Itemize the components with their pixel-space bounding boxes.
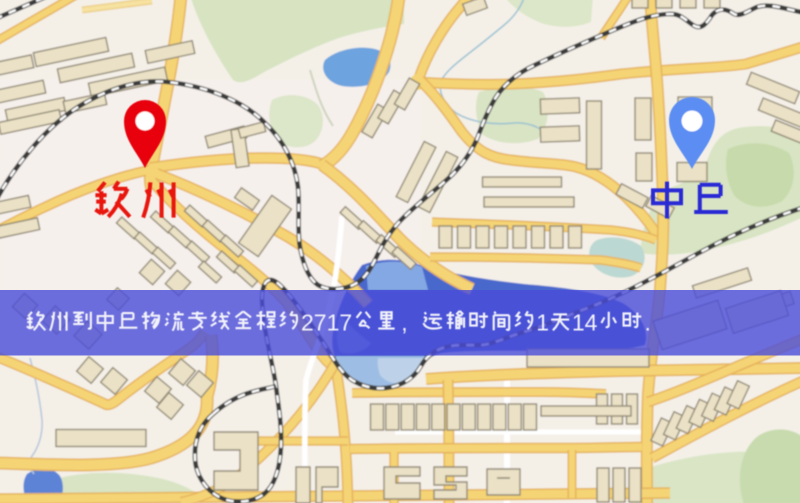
- svg-text:.: .: [645, 310, 651, 336]
- svg-text:1: 1: [536, 310, 549, 336]
- svg-text:2717: 2717: [301, 310, 352, 336]
- svg-text:14: 14: [572, 310, 598, 336]
- svg-text:,: ,: [401, 310, 407, 336]
